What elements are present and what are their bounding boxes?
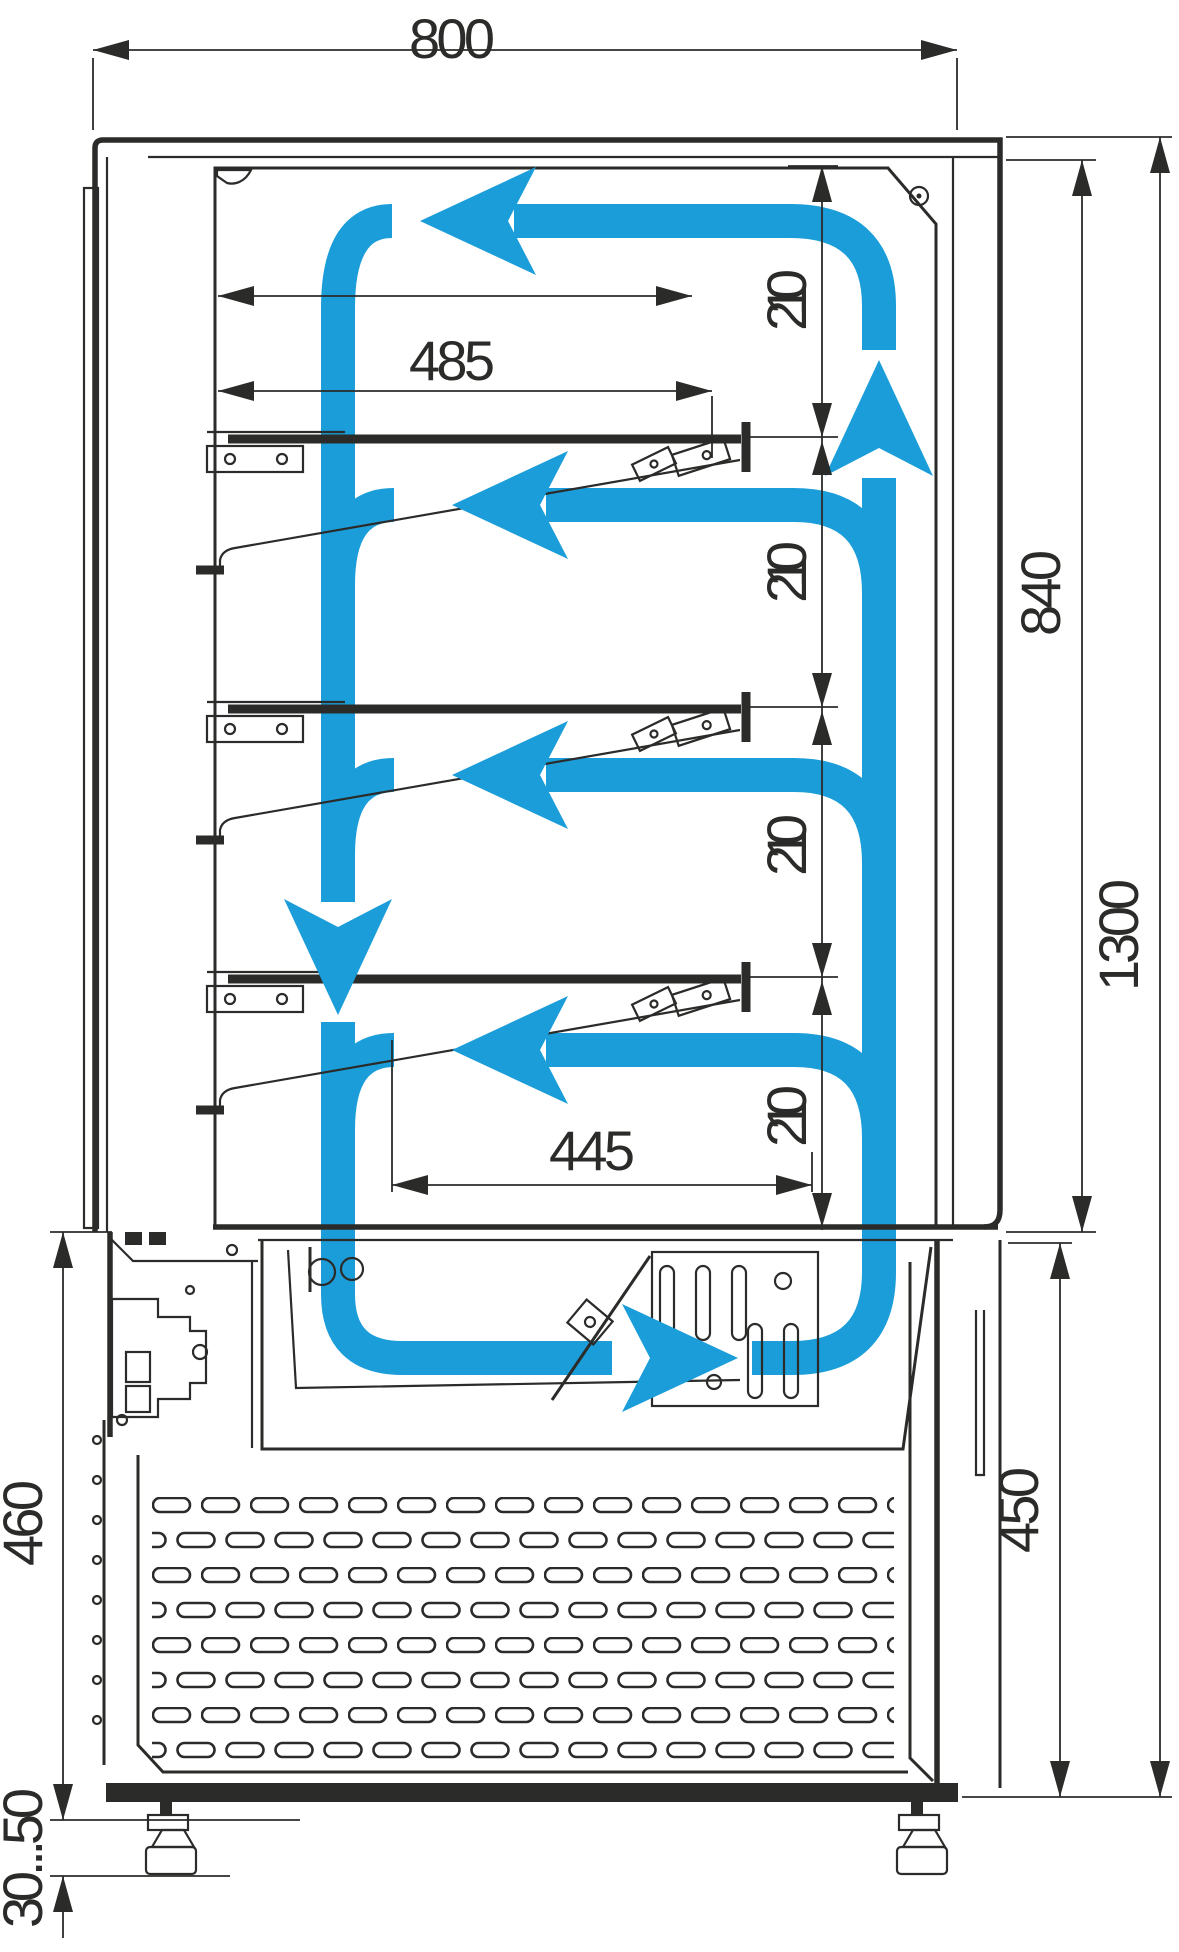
- technical-drawing: 800 485 210: [0, 0, 1179, 1952]
- dim-label-interior-height: 840: [1009, 550, 1072, 636]
- adjustable-foot-left: [146, 1802, 196, 1874]
- arrow-down-icon: [284, 899, 392, 1015]
- dim-label-shelf-depth: 485: [409, 329, 495, 392]
- dim-label-gap1: 210: [755, 269, 818, 331]
- dim-overall-width: 800: [93, 7, 957, 130]
- dim-label-overall-width: 800: [409, 7, 495, 70]
- dim-label-base-height: 460: [0, 1480, 54, 1566]
- dim-label-well-depth: 445: [549, 1119, 635, 1182]
- dim-label-foot-adjustment: 30...50: [0, 1788, 54, 1928]
- compressor-unit: [112, 1286, 207, 1425]
- airflow-front-descent-lower: [338, 1022, 612, 1358]
- airflow-gap3-branch: [546, 775, 879, 863]
- dim-label-machine-height: 450: [987, 1467, 1050, 1553]
- glass-retainer-wedge: [217, 170, 251, 184]
- arrow-up-icon: [825, 360, 933, 476]
- airflow-gap2-branch: [546, 505, 879, 593]
- condenser-strip: [93, 1420, 104, 1765]
- dim-label-overall-height: 1300: [1087, 879, 1150, 991]
- airflow-gap3-merge: [338, 775, 394, 855]
- arrow-right-well-icon: [622, 1304, 738, 1412]
- dim-label-gap2: 210: [755, 541, 818, 603]
- dim-label-gap3: 210: [755, 814, 818, 876]
- ventilation-grille: [152, 1497, 894, 1763]
- adjustable-foot-right: [897, 1802, 947, 1874]
- vent-slot: [976, 1310, 984, 1475]
- airflow-top-duct: [514, 221, 879, 350]
- base-frame: [106, 1783, 958, 1802]
- drawing-page: 800 485 210: [0, 0, 1179, 1952]
- dim-label-gap4: 210: [755, 1085, 818, 1147]
- dim-interior-height: 840: [1006, 160, 1096, 1232]
- airflow-gap2-merge: [338, 505, 394, 585]
